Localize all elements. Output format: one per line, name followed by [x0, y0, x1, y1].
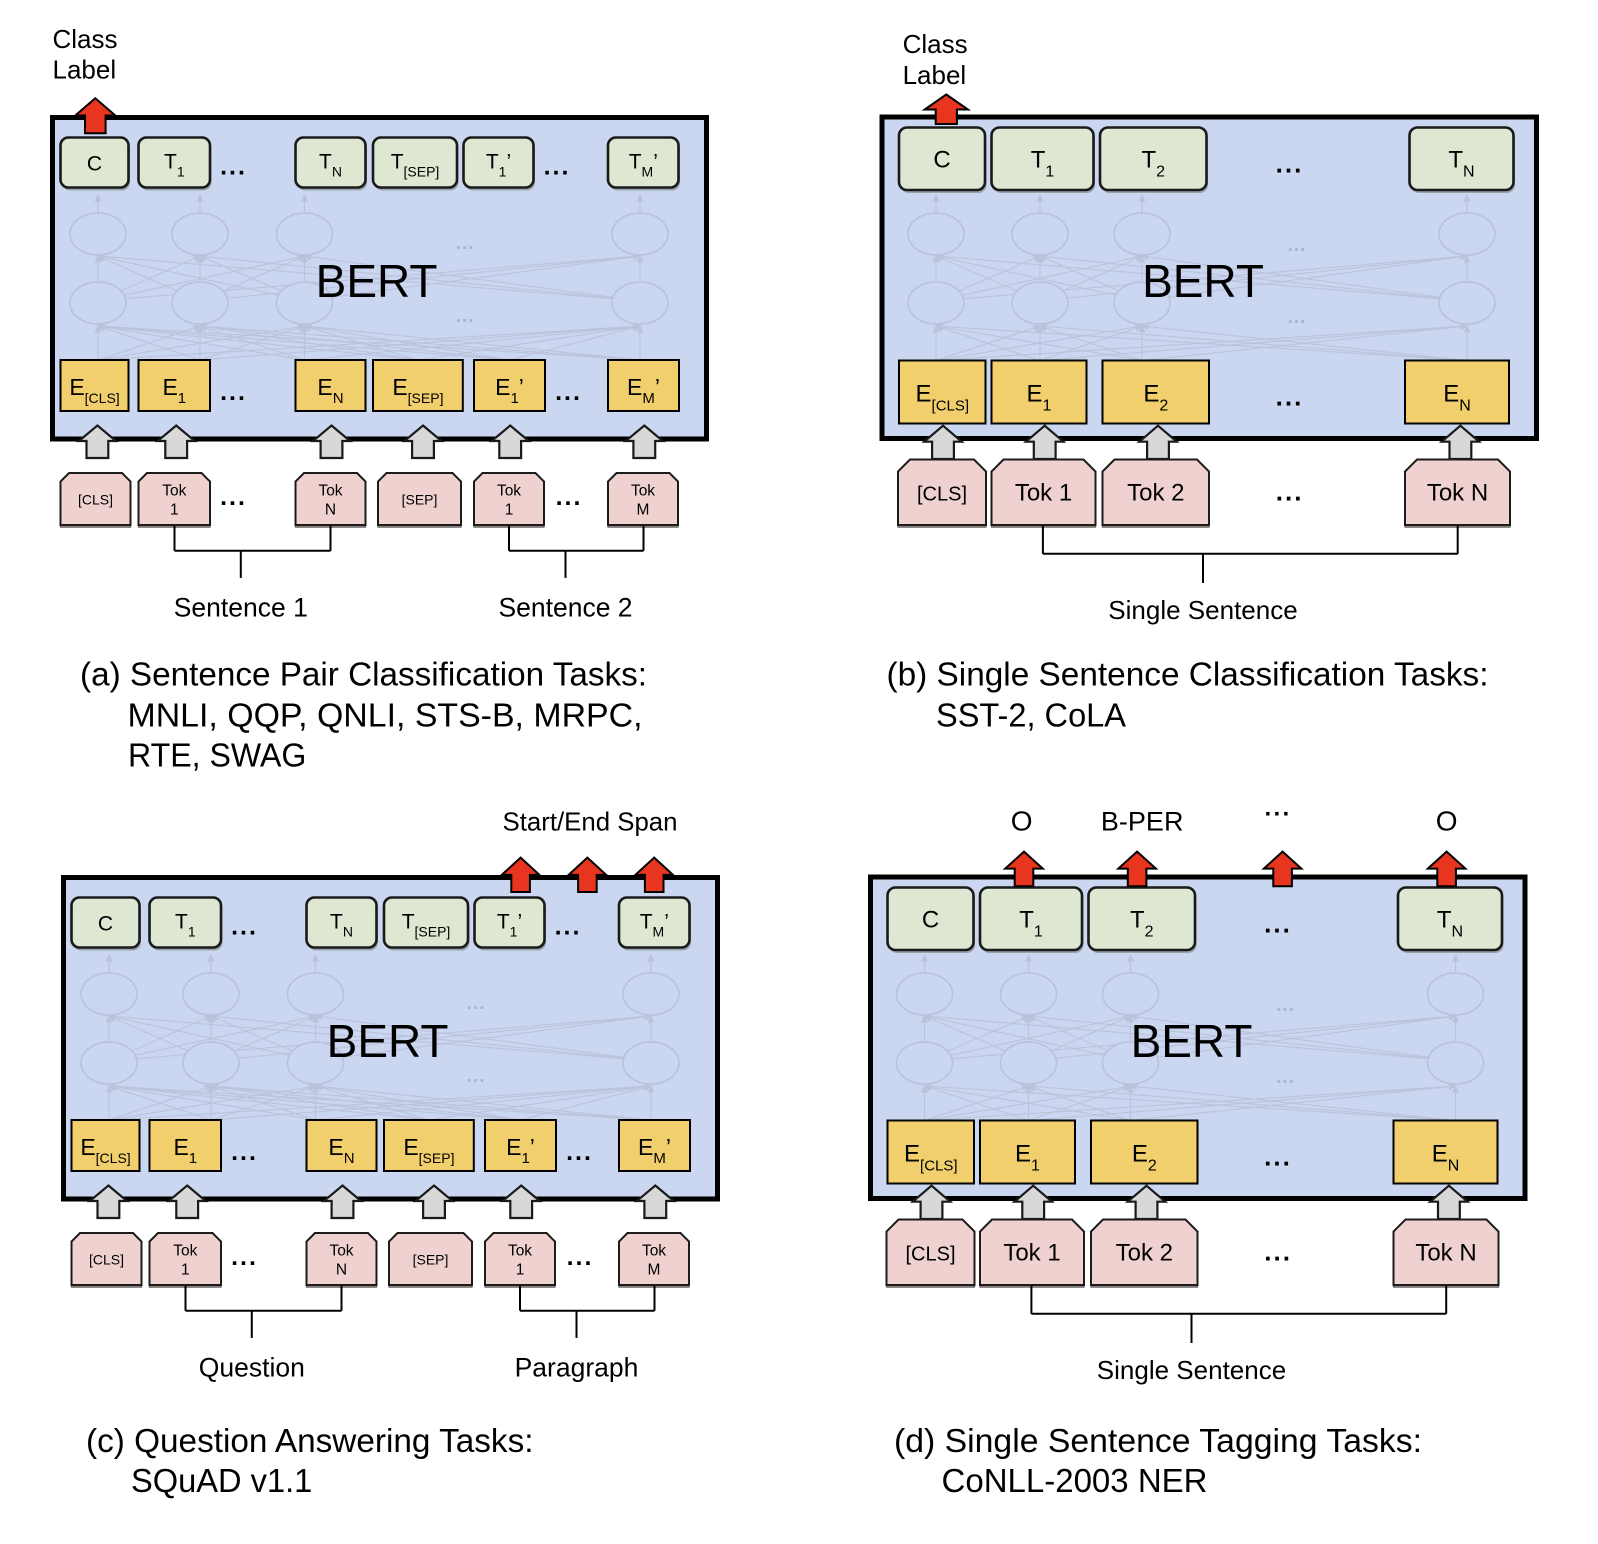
svg-text:Tok: Tok	[631, 483, 655, 500]
svg-text:...: ...	[467, 993, 486, 1014]
svg-text:Class: Class	[903, 29, 968, 59]
svg-text:[CLS]: [CLS]	[917, 484, 967, 506]
svg-text:...: ...	[220, 483, 247, 511]
svg-text:...: ...	[1288, 307, 1307, 328]
svg-text:M: M	[637, 502, 650, 519]
svg-text:BERT: BERT	[327, 1015, 449, 1067]
svg-text:Paragraph: Paragraph	[515, 1353, 639, 1383]
svg-text:...: ...	[231, 1243, 258, 1271]
svg-text:SST-2, CoLA: SST-2, CoLA	[936, 696, 1126, 733]
svg-text:...: ...	[231, 913, 258, 941]
svg-text:...: ...	[1288, 235, 1307, 256]
svg-text:(b) Single Sentence Classifica: (b) Single Sentence Classification Tasks…	[887, 656, 1489, 693]
svg-text:...: ...	[456, 233, 475, 254]
svg-text:Sentence 1: Sentence 1	[174, 593, 308, 623]
svg-text:Tok: Tok	[162, 483, 186, 500]
svg-text:...: ...	[1264, 1237, 1292, 1267]
svg-text:SQuAD v1.1: SQuAD v1.1	[131, 1462, 312, 1499]
svg-text:Tok 1: Tok 1	[1015, 480, 1072, 507]
svg-text:1: 1	[170, 502, 179, 519]
svg-text:BERT: BERT	[316, 255, 438, 307]
svg-text:[CLS]: [CLS]	[89, 1252, 124, 1268]
svg-text:Tok: Tok	[508, 1243, 532, 1260]
svg-text:Sentence 2: Sentence 2	[498, 593, 632, 623]
svg-text:[CLS]: [CLS]	[78, 492, 113, 508]
svg-text:O: O	[1011, 805, 1033, 836]
svg-text:...: ...	[1276, 995, 1295, 1016]
svg-text:Tok N: Tok N	[1415, 1240, 1476, 1267]
svg-text:Single Sentence: Single Sentence	[1097, 1355, 1286, 1385]
svg-text:...: ...	[1276, 149, 1304, 179]
svg-text:O: O	[1436, 805, 1458, 836]
svg-text:C: C	[922, 907, 939, 934]
svg-text:Label: Label	[53, 54, 117, 84]
svg-text:...: ...	[1276, 477, 1304, 507]
svg-text:...: ...	[556, 483, 583, 511]
svg-text:...: ...	[567, 1243, 594, 1271]
svg-text:Single Sentence: Single Sentence	[1108, 595, 1297, 625]
svg-text:1: 1	[505, 502, 514, 519]
svg-text:(a) Sentence Pair Classificati: (a) Sentence Pair Classification Tasks:	[80, 656, 647, 693]
svg-text:...: ...	[231, 1138, 258, 1166]
svg-text:(d) Single Sentence Tagging Ta: (d) Single Sentence Tagging Tasks:	[894, 1422, 1422, 1459]
svg-text:...: ...	[1276, 1067, 1295, 1088]
svg-text:(c) Question Answering Tasks:: (c) Question Answering Tasks:	[86, 1422, 534, 1459]
svg-text:...: ...	[456, 306, 475, 327]
svg-text:...: ...	[220, 378, 247, 406]
svg-text:Tok 1: Tok 1	[1003, 1240, 1060, 1267]
svg-text:...: ...	[544, 153, 571, 181]
svg-text:C: C	[933, 147, 950, 174]
svg-text:CoNLL-2003 NER: CoNLL-2003 NER	[942, 1462, 1208, 1499]
svg-text:Tok 2: Tok 2	[1127, 480, 1184, 507]
svg-text:Start/End Span: Start/End Span	[503, 807, 678, 837]
svg-text:...: ...	[555, 378, 582, 406]
svg-text:Tok: Tok	[497, 483, 521, 500]
svg-text:[SEP]: [SEP]	[402, 492, 438, 508]
svg-text:Tok: Tok	[173, 1243, 197, 1260]
svg-text:Class: Class	[53, 24, 118, 54]
svg-text:C: C	[98, 913, 113, 936]
svg-text:C: C	[87, 153, 102, 176]
svg-text:...: ...	[467, 1066, 486, 1087]
svg-text:...: ...	[566, 1138, 593, 1166]
svg-text:BERT: BERT	[1142, 255, 1264, 307]
svg-text:RTE, SWAG: RTE, SWAG	[128, 736, 306, 773]
svg-text:N: N	[325, 502, 336, 519]
svg-text:Tok: Tok	[642, 1243, 666, 1260]
svg-text:MNLI, QQP, QNLI, STS-B, MRPC,: MNLI, QQP, QNLI, STS-B, MRPC,	[128, 696, 643, 733]
svg-text:Tok: Tok	[329, 1243, 353, 1260]
svg-text:Label: Label	[903, 60, 967, 90]
svg-text:...: ...	[1264, 1142, 1292, 1172]
svg-text:N: N	[336, 1262, 347, 1279]
svg-text:Tok N: Tok N	[1427, 480, 1488, 507]
svg-text:...: ...	[1276, 382, 1304, 412]
svg-text:...: ...	[1264, 909, 1292, 939]
svg-text:BERT: BERT	[1131, 1015, 1253, 1067]
svg-text:B-PER: B-PER	[1101, 806, 1184, 836]
svg-text:...: ...	[220, 153, 247, 181]
svg-text:Question: Question	[199, 1353, 305, 1383]
svg-text:1: 1	[181, 1262, 190, 1279]
svg-text:···: ···	[1265, 801, 1292, 828]
svg-text:M: M	[648, 1262, 661, 1279]
svg-text:[SEP]: [SEP]	[413, 1252, 449, 1268]
svg-text:Tok 2: Tok 2	[1116, 1240, 1173, 1267]
svg-text:Tok: Tok	[318, 483, 342, 500]
svg-text:...: ...	[555, 913, 582, 941]
svg-text:1: 1	[516, 1262, 525, 1279]
svg-text:[CLS]: [CLS]	[905, 1244, 955, 1266]
